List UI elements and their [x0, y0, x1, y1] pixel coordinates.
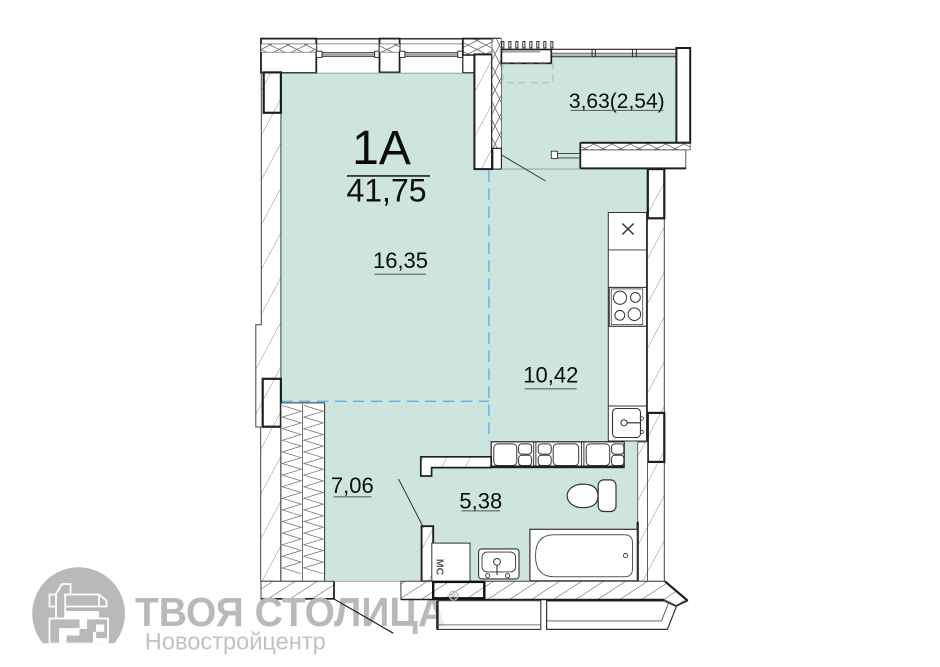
svg-text:7,06: 7,06: [331, 473, 374, 498]
svg-text:41,75: 41,75: [346, 172, 426, 208]
svg-text:5,38: 5,38: [459, 488, 502, 513]
svg-text:Новостройцентр: Новостройцентр: [145, 629, 326, 655]
svg-text:ТВОЯ СТОЛИЦА: ТВОЯ СТОЛИЦА: [135, 590, 446, 635]
svg-text:1А: 1А: [352, 122, 411, 175]
svg-text:16,35: 16,35: [373, 248, 428, 273]
svg-text:МС: МС: [433, 559, 445, 576]
svg-text:3,63(2,54): 3,63(2,54): [569, 90, 665, 113]
svg-text:10,42: 10,42: [523, 363, 578, 388]
svg-text:R: R: [451, 594, 456, 601]
